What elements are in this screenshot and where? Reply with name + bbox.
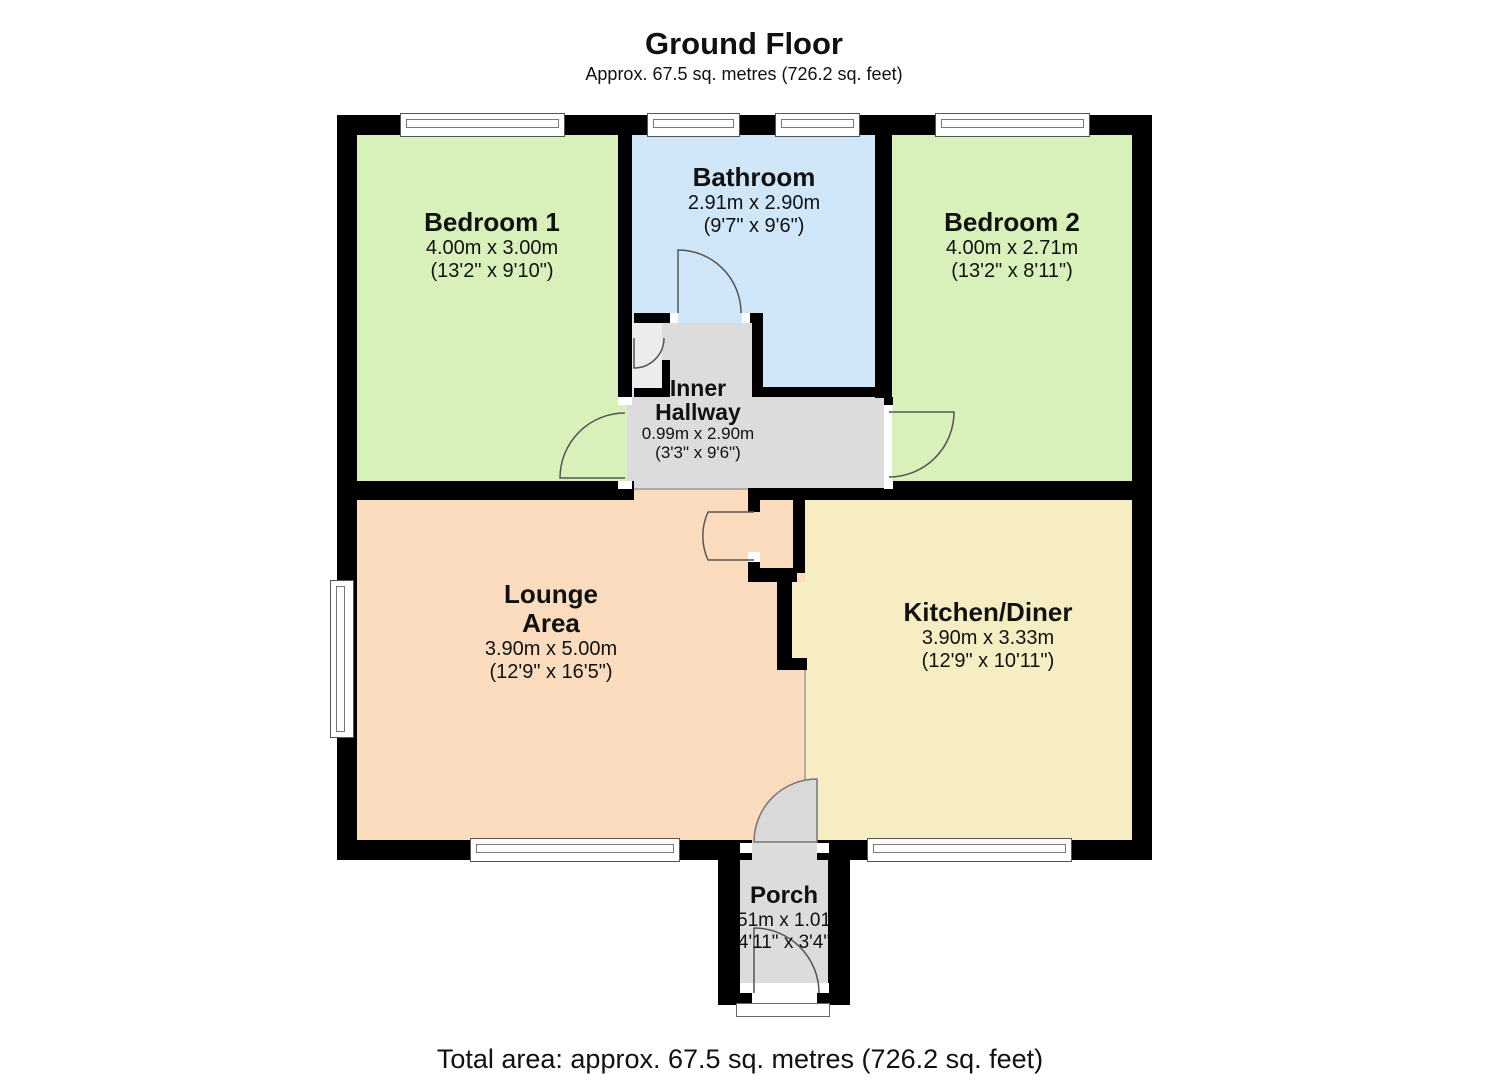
room-label-bedroom1: Bedroom 1 4.00m x 3.00m (13'2" x 9'10"): [424, 208, 560, 282]
kitchen-imperial: (12'9" x 10'11"): [903, 650, 1072, 672]
window-glazing: [476, 844, 674, 853]
jamb-bedroom1-bottom: [618, 481, 632, 489]
wall-cupboard-top: [634, 313, 670, 323]
lounge-imperial: (12'9" x 16'5"): [485, 661, 617, 683]
kitchen-nook-fill: [792, 582, 805, 670]
hallway-name: Inner Hallway: [643, 376, 753, 424]
wall-bedroom1-bathroom: [618, 135, 632, 397]
room-label-bathroom: Bathroom 2.91m x 2.90m (9'7" x 9'6"): [688, 163, 820, 237]
jamb-lounge-door: [748, 552, 760, 562]
lounge-name: Lounge Area: [486, 580, 616, 638]
porch-name: Porch: [750, 882, 818, 910]
wall-kitchen-jog-upper: [793, 500, 805, 573]
window-lounge-bottom: [470, 838, 680, 862]
wall-kitchen-stub-bottom: [777, 658, 807, 670]
window-glazing: [653, 119, 734, 128]
page-subtitle: Approx. 67.5 sq. metres (726.2 sq. feet): [585, 64, 902, 85]
porch-metric: 1.51m x 1.01m: [740, 910, 828, 932]
jamb-porch-top-left: [740, 843, 752, 853]
hallway-imperial: (3'3" x 9'6"): [642, 443, 754, 462]
page-title: Ground Floor: [585, 26, 902, 62]
wall-lounge-door-stub-top: [748, 500, 760, 512]
plan-header: Ground Floor Approx. 67.5 sq. metres (72…: [585, 26, 902, 85]
room-label-porch: Porch 1.51m x 1.01m (4'11" x 3'4"): [740, 882, 828, 978]
room-label-lounge: Lounge Area 3.90m x 5.00m (12'9" x 16'5"…: [485, 580, 617, 683]
jamb-porch-bottom-left: [740, 983, 752, 993]
jamb-porch-top-right: [817, 843, 829, 853]
bathroom-name: Bathroom: [688, 163, 820, 192]
bedroom2-metric: 4.00m x 2.71m: [944, 237, 1080, 259]
room-label-kitchen: Kitchen/Diner 3.90m x 3.33m (12'9" x 10'…: [903, 598, 1072, 672]
bathroom-metric: 2.91m x 2.90m: [688, 192, 820, 214]
jamb-bedroom2-top: [884, 405, 893, 413]
bedroom1-imperial: (13'2" x 9'10"): [424, 260, 560, 282]
jamb-bathroom-right: [742, 313, 750, 323]
kitchen-metric: 3.90m x 3.33m: [903, 627, 1072, 649]
window-glazing: [873, 844, 1066, 853]
lounge-metric: 3.90m x 5.00m: [485, 638, 617, 660]
room-label-hallway: Inner Hallway 0.99m x 2.90m (3'3" x 9'6"…: [642, 376, 754, 462]
wall-hallway-bedroom2-top: [884, 397, 893, 405]
wall-porch-right: [828, 843, 850, 1005]
window-bathroom-top-left: [647, 113, 740, 137]
room-label-bedroom2: Bedroom 2 4.00m x 2.71m (13'2" x 8'11"): [944, 208, 1080, 282]
window-bathroom-top-right: [775, 113, 860, 137]
bedroom1-name: Bedroom 1: [424, 208, 560, 237]
window-glazing: [406, 119, 559, 128]
bedroom2-imperial: (13'2" x 8'11"): [944, 260, 1080, 282]
wall-lounge-door-stub-bottom: [748, 562, 760, 582]
bedroom2-name: Bedroom 2: [944, 208, 1080, 237]
wall-lounge-kitchen: [777, 582, 792, 658]
jamb-bedroom1-top: [618, 397, 632, 405]
wall-kitchen-jog-horiz: [760, 568, 797, 582]
wall-exterior-left: [337, 115, 357, 860]
jamb-bedroom2-bottom: [884, 481, 893, 489]
wall-bathroom-bottom: [752, 387, 884, 397]
jamb-porch-bottom-right: [817, 983, 829, 993]
window-lounge-left: [330, 580, 354, 738]
window-glazing: [336, 586, 345, 732]
hallway-metric: 0.99m x 2.90m: [642, 424, 754, 443]
porch-threshold-fill: [752, 840, 817, 860]
room-bedroom1-fill: [357, 135, 627, 490]
window-bedroom1-top: [400, 113, 565, 137]
kitchen-name: Kitchen/Diner: [903, 598, 1072, 627]
room-bedroom2-fill: [892, 135, 1132, 490]
window-glazing: [781, 119, 854, 128]
wall-bedroom2-kitchen: [884, 481, 1152, 500]
wall-porch-left: [718, 843, 740, 1005]
wall-bathroom-bedroom2: [875, 135, 892, 398]
wall-bedroom1-lounge: [357, 481, 634, 500]
floor-plan: Ground Floor Approx. 67.5 sq. metres (72…: [0, 0, 1485, 1080]
bedroom1-metric: 4.00m x 3.00m: [424, 237, 560, 259]
jamb-bathroom-left: [670, 313, 678, 323]
window-glazing: [941, 119, 1084, 128]
wall-hallway-kitchen: [748, 488, 884, 500]
window-bedroom2-top: [935, 113, 1090, 137]
porch-imperial: (4'11" x 3'4"): [740, 932, 828, 954]
bathroom-imperial: (9'7" x 9'6"): [688, 215, 820, 237]
window-kitchen-bottom: [867, 838, 1072, 862]
porch-step: [736, 1003, 830, 1017]
total-area-text: Total area: approx. 67.5 sq. metres (726…: [437, 1044, 1043, 1075]
